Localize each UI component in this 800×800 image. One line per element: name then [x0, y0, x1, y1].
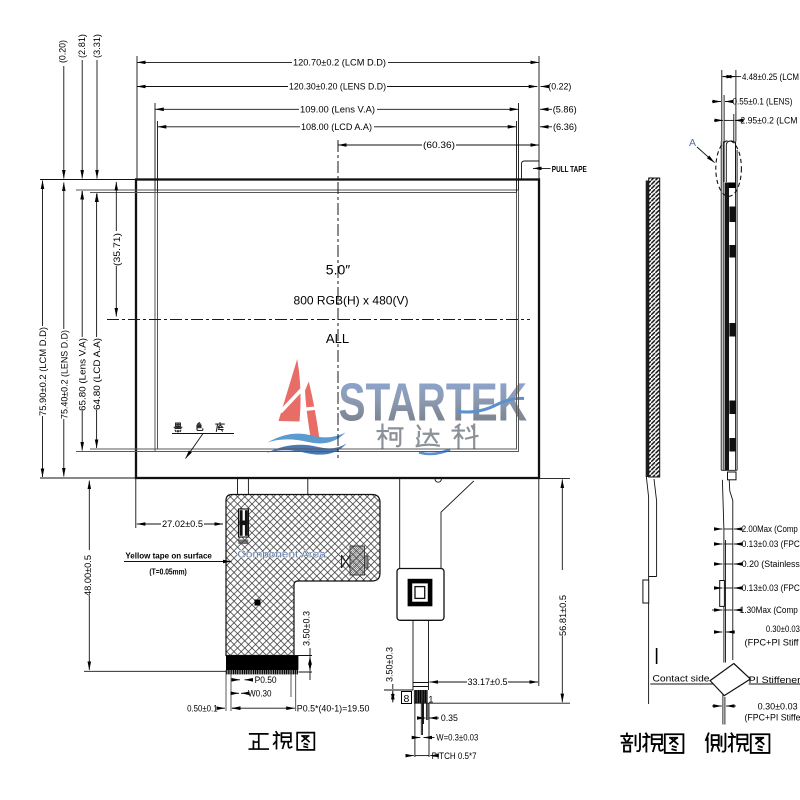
svg-text:800 RGB(H) x 480(V): 800 RGB(H) x 480(V): [294, 294, 409, 308]
svg-text:2.00Max (Comp: 2.00Max (Comp: [742, 524, 798, 535]
svg-text:(3.31): (3.31): [92, 34, 103, 58]
svg-text:4.48±0.25 (LCM: 4.48±0.25 (LCM: [742, 72, 799, 83]
svg-text:W=0.3±0.03: W=0.3±0.03: [436, 733, 478, 744]
svg-text:64.80 (LCD A.A): 64.80 (LCD A.A): [92, 338, 103, 410]
svg-text:(0.20): (0.20): [58, 40, 69, 63]
svg-text:0.13±0.03 (FPC: 0.13±0.03 (FPC: [742, 583, 800, 594]
svg-text:65.80 (Lens V.A): 65.80 (Lens V.A): [78, 338, 89, 411]
svg-text:0.13±0.03 (FPC: 0.13±0.03 (FPC: [742, 539, 800, 550]
svg-text:W0.30: W0.30: [248, 689, 272, 700]
svg-text:(0.22): (0.22): [548, 82, 571, 93]
svg-text:(2.81): (2.81): [77, 34, 88, 58]
svg-text:0.20 (Stainless: 0.20 (Stainless: [742, 559, 800, 570]
svg-text:ALL: ALL: [326, 331, 349, 346]
svg-text:1.30Max (Comp: 1.30Max (Comp: [740, 605, 798, 616]
svg-text:2.95±0.2 (LCM: 2.95±0.2 (LCM: [740, 116, 797, 127]
svg-text:Component Area: Component Area: [237, 549, 326, 560]
svg-text:120.30±0.20 (LENS D.D): 120.30±0.20 (LENS D.D): [289, 82, 386, 93]
svg-text:3.50±0.3: 3.50±0.3: [302, 611, 313, 646]
svg-text:56.81±0.5: 56.81±0.5: [558, 595, 569, 636]
svg-text:P0.5*(40-1)=19.50: P0.5*(40-1)=19.50: [297, 703, 370, 714]
svg-text:(60.36): (60.36): [423, 140, 455, 151]
svg-text:33.17±0.5: 33.17±0.5: [468, 677, 508, 688]
svg-text:PITCH 0.5*7: PITCH 0.5*7: [432, 751, 477, 762]
svg-text:120.70±0.2 (LCM D.D): 120.70±0.2 (LCM D.D): [293, 58, 386, 69]
svg-text:P0.50: P0.50: [255, 675, 277, 686]
svg-text:A: A: [689, 137, 696, 149]
svg-text:0.30±0.03: 0.30±0.03: [758, 702, 798, 713]
svg-text:75.90±0.2 (LCM D.D): 75.90±0.2 (LCM D.D): [38, 327, 49, 416]
svg-text:(FPC+PI Stiffe: (FPC+PI Stiffe: [745, 712, 800, 723]
svg-text:8: 8: [404, 693, 410, 705]
svg-text:(6.36): (6.36): [553, 122, 577, 133]
svg-text:3.50±0.3: 3.50±0.3: [385, 647, 396, 682]
svg-text:109.00 (Lens V.A): 109.00 (Lens V.A): [300, 105, 375, 116]
svg-text:0.55±0.1 (LENS): 0.55±0.1 (LENS): [733, 97, 793, 108]
svg-text:0.30±0.03: 0.30±0.03: [766, 624, 800, 635]
svg-text:0.50±0.1: 0.50±0.1: [187, 703, 218, 714]
svg-text:Yellow tape on surface: Yellow tape on surface: [125, 551, 212, 561]
svg-text:(T=0.05mm): (T=0.05mm): [149, 567, 187, 577]
svg-text:5.0″: 5.0″: [326, 262, 350, 278]
svg-text:27.02±0.5: 27.02±0.5: [162, 519, 203, 530]
svg-text:PULL TAPE: PULL TAPE: [552, 164, 587, 174]
svg-text:(35.71): (35.71): [112, 233, 123, 266]
svg-text:Contact side: Contact side: [653, 674, 710, 685]
svg-text:0.35: 0.35: [441, 713, 458, 724]
svg-text:(FPC+PI Stiff: (FPC+PI Stiff: [745, 637, 799, 648]
svg-text:(5.86): (5.86): [553, 105, 577, 116]
svg-text:48.00±0.5: 48.00±0.5: [83, 555, 94, 596]
svg-text:75.40±0.2 (LENS D.D): 75.40±0.2 (LENS D.D): [59, 330, 70, 419]
svg-text:108.00 (LCD A.A): 108.00 (LCD A.A): [301, 122, 372, 133]
